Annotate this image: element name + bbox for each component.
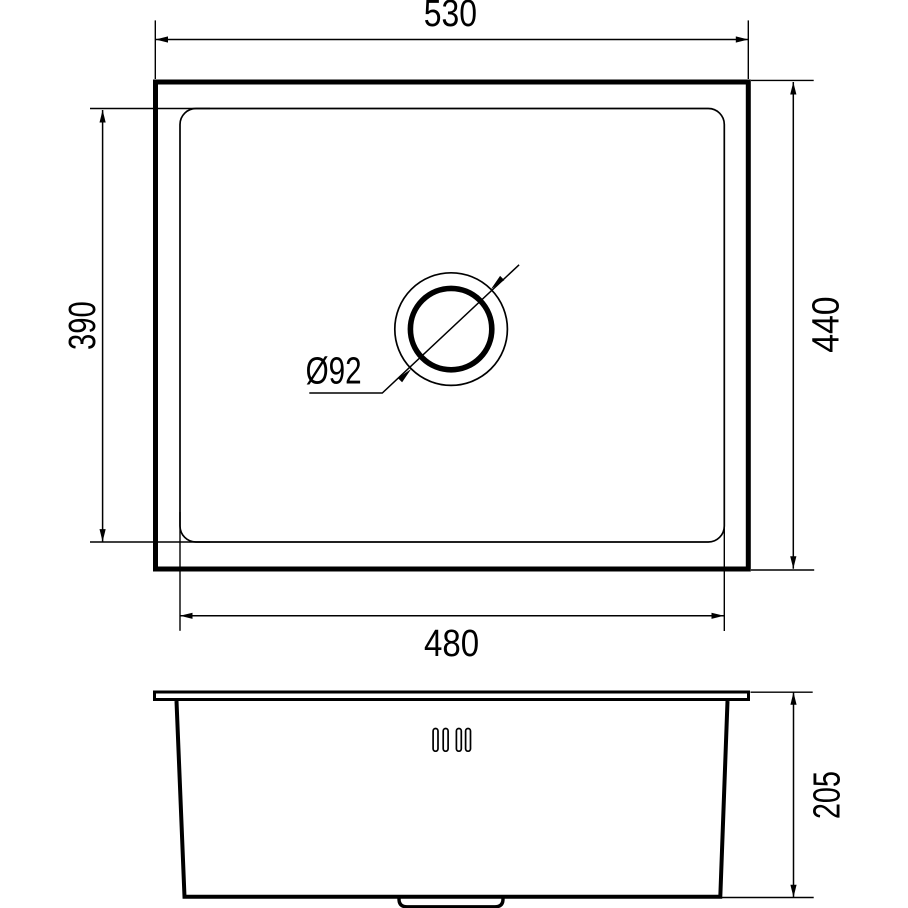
svg-text:480: 480 — [424, 622, 479, 665]
svg-text:Ø92: Ø92 — [306, 350, 362, 392]
svg-text:530: 530 — [424, 0, 477, 35]
svg-text:205: 205 — [806, 771, 849, 819]
svg-text:390: 390 — [62, 301, 105, 350]
svg-text:440: 440 — [804, 296, 847, 352]
